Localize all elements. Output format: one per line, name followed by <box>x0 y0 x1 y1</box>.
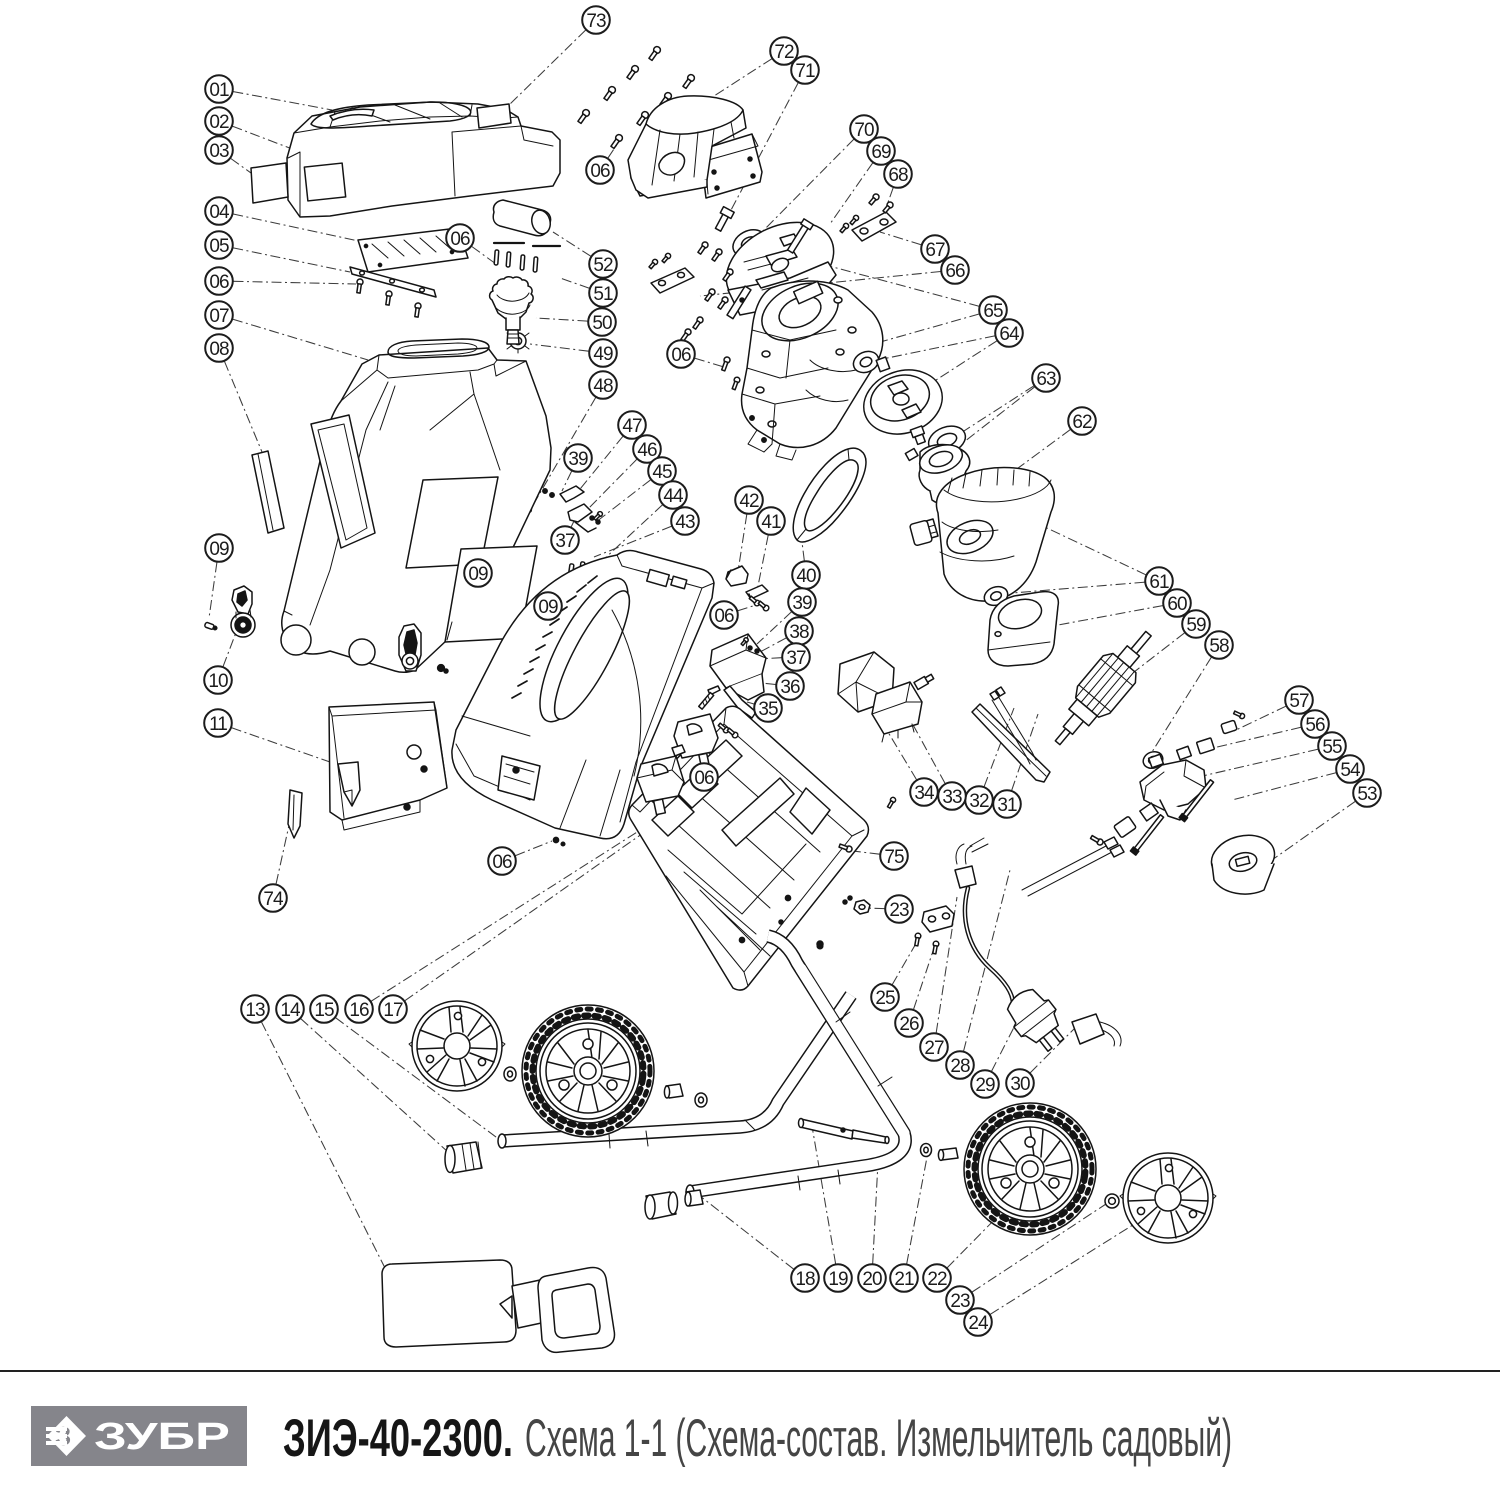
svg-text:48: 48 <box>593 376 613 397</box>
svg-text:69: 69 <box>871 142 891 163</box>
svg-text:20: 20 <box>862 1269 882 1290</box>
svg-text:63: 63 <box>1036 369 1056 390</box>
svg-text:01: 01 <box>209 80 229 101</box>
svg-text:36: 36 <box>780 677 800 698</box>
svg-text:38: 38 <box>789 622 809 643</box>
svg-text:61: 61 <box>1149 572 1169 593</box>
svg-text:44: 44 <box>663 486 684 507</box>
svg-text:06: 06 <box>671 345 691 366</box>
svg-text:04: 04 <box>209 202 230 223</box>
svg-text:65: 65 <box>983 301 1003 322</box>
svg-text:39: 39 <box>568 449 588 470</box>
svg-text:34: 34 <box>914 783 935 804</box>
svg-text:51: 51 <box>593 284 613 305</box>
svg-text:53: 53 <box>1357 784 1377 805</box>
svg-text:26: 26 <box>899 1014 919 1035</box>
svg-text:08: 08 <box>209 339 229 360</box>
svg-text:46: 46 <box>637 440 657 461</box>
svg-text:32: 32 <box>969 791 989 812</box>
svg-text:30: 30 <box>1010 1074 1030 1095</box>
svg-text:06: 06 <box>450 229 470 250</box>
svg-text:60: 60 <box>1167 594 1187 615</box>
svg-text:64: 64 <box>999 324 1020 345</box>
svg-text:11: 11 <box>209 714 227 735</box>
svg-text:57: 57 <box>1289 691 1309 712</box>
svg-text:14: 14 <box>280 1000 301 1021</box>
svg-text:43: 43 <box>675 512 695 533</box>
svg-text:15: 15 <box>314 1000 334 1021</box>
svg-text:21: 21 <box>894 1269 914 1290</box>
svg-text:31: 31 <box>997 795 1017 816</box>
svg-text:24: 24 <box>968 1313 989 1334</box>
svg-text:19: 19 <box>828 1269 848 1290</box>
svg-text:58: 58 <box>1209 636 1229 657</box>
svg-text:47: 47 <box>622 416 642 437</box>
svg-text:18: 18 <box>795 1269 815 1290</box>
svg-text:Схема 1-1 (Схема-состав. Измел: Схема 1-1 (Схема-состав. Измельчитель са… <box>525 1409 1232 1468</box>
svg-text:42: 42 <box>739 491 759 512</box>
svg-text:71: 71 <box>795 61 815 82</box>
svg-text:07: 07 <box>209 306 229 327</box>
svg-text:05: 05 <box>209 236 229 257</box>
svg-text:73: 73 <box>586 11 606 32</box>
svg-text:54: 54 <box>1340 760 1361 781</box>
svg-text:50: 50 <box>592 313 612 334</box>
svg-text:68: 68 <box>888 165 908 186</box>
svg-text:45: 45 <box>652 462 672 483</box>
svg-text:56: 56 <box>1305 715 1325 736</box>
svg-text:06: 06 <box>714 606 734 627</box>
svg-text:10: 10 <box>208 671 228 692</box>
svg-text:ЗУБР: ЗУБР <box>94 1416 230 1458</box>
svg-text:ЗИЭ-40-2300.: ЗИЭ-40-2300. <box>283 1409 513 1468</box>
svg-text:72: 72 <box>774 42 794 63</box>
svg-text:06: 06 <box>492 852 512 873</box>
svg-text:70: 70 <box>854 120 874 141</box>
svg-text:33: 33 <box>942 787 962 808</box>
svg-text:59: 59 <box>1186 615 1206 636</box>
svg-text:13: 13 <box>245 1000 265 1021</box>
svg-text:29: 29 <box>975 1075 995 1096</box>
svg-text:35: 35 <box>758 699 778 720</box>
svg-text:27: 27 <box>924 1038 944 1059</box>
svg-text:66: 66 <box>945 261 965 282</box>
svg-text:37: 37 <box>786 648 806 669</box>
svg-text:06: 06 <box>590 161 610 182</box>
svg-text:09: 09 <box>468 564 488 585</box>
svg-text:06: 06 <box>694 768 714 789</box>
svg-text:02: 02 <box>209 112 229 133</box>
svg-text:16: 16 <box>349 1000 369 1021</box>
svg-text:74: 74 <box>263 889 284 910</box>
svg-text:23: 23 <box>950 1291 970 1312</box>
svg-text:41: 41 <box>761 512 781 533</box>
svg-text:17: 17 <box>383 1000 403 1021</box>
svg-text:28: 28 <box>950 1056 970 1077</box>
svg-text:40: 40 <box>796 566 816 587</box>
svg-text:55: 55 <box>1322 737 1342 758</box>
svg-text:67: 67 <box>925 240 945 261</box>
svg-text:09: 09 <box>209 539 229 560</box>
svg-text:52: 52 <box>593 255 613 276</box>
svg-text:22: 22 <box>927 1269 947 1290</box>
svg-text:62: 62 <box>1072 412 1092 433</box>
svg-text:49: 49 <box>593 344 613 365</box>
svg-text:06: 06 <box>209 272 229 293</box>
svg-text:39: 39 <box>792 593 812 614</box>
svg-text:75: 75 <box>884 847 904 868</box>
svg-text:37: 37 <box>555 531 575 552</box>
svg-text:09: 09 <box>538 597 558 618</box>
svg-text:25: 25 <box>875 988 895 1009</box>
svg-text:23: 23 <box>889 900 909 921</box>
svg-text:03: 03 <box>209 141 229 162</box>
